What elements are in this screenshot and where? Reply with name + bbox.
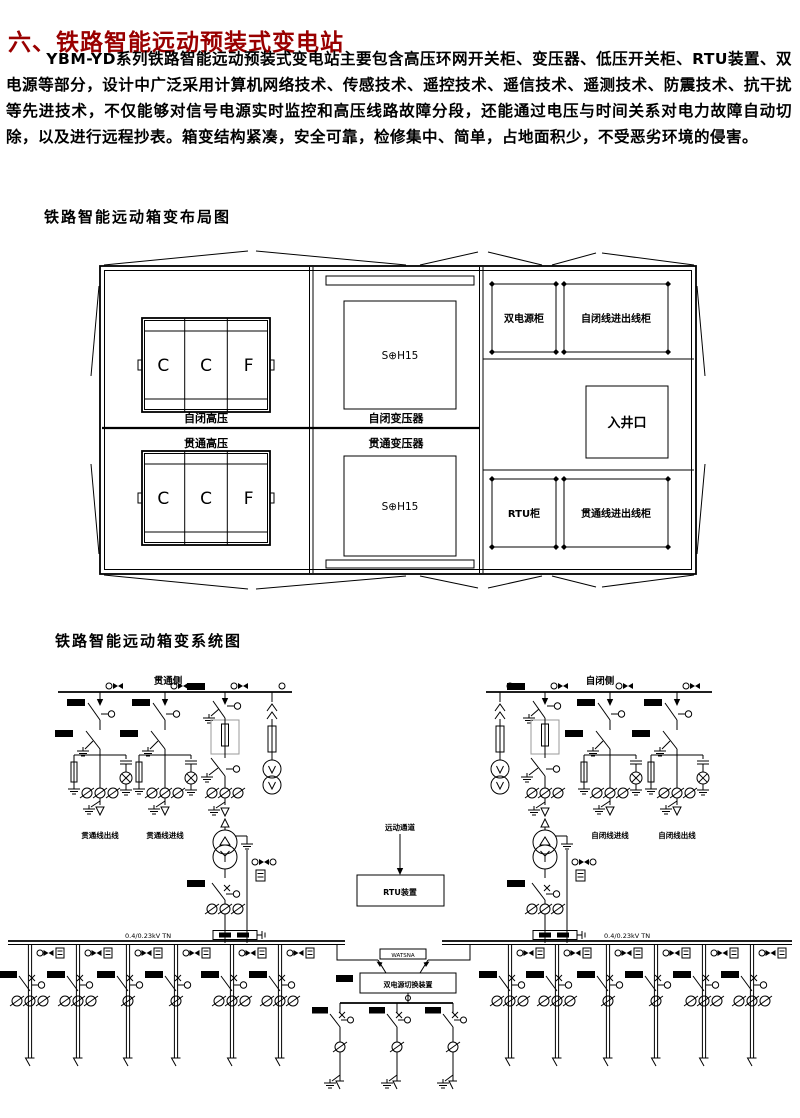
lv-feeder bbox=[201, 945, 266, 1066]
lv-feeder bbox=[625, 945, 690, 1066]
rtu-box-label: RTU装置 bbox=[383, 887, 417, 897]
lv-feeder bbox=[577, 945, 642, 1066]
room-label-zibi-hv: 自闭高压 bbox=[184, 411, 228, 425]
lv-feeder bbox=[249, 945, 314, 1066]
hv-room-top: C C F 自闭高压 bbox=[138, 318, 274, 425]
room-label-guantong-tx: 贯通变压器 bbox=[369, 436, 425, 450]
lv-bus-label: 0.4/0.23kV TN bbox=[125, 932, 171, 940]
feeder-label: 自闭线出线 bbox=[658, 830, 696, 840]
lv-bus-label: 0.4/0.23kV TN bbox=[604, 932, 650, 940]
manhole-label: 入井口 bbox=[607, 415, 646, 431]
system-diagram: 贯通侧 贯通线出线 贯通线进线 自闭侧 自闭线进线 自闭线出线 远动通道 RTU… bbox=[0, 658, 800, 1118]
pt-bay bbox=[263, 683, 285, 794]
dual-power-cabinet-label: 双电源柜 bbox=[504, 312, 544, 325]
pt-bay bbox=[491, 683, 513, 794]
rtu-cabinet-label: RTU柜 bbox=[508, 507, 540, 520]
ats-feeder bbox=[425, 1003, 467, 1089]
transformer-model: S⊕H15 bbox=[382, 350, 419, 362]
hv-room-bottom: 贯通高压 C C F bbox=[138, 436, 274, 545]
zibi-hv-section: 自闭侧 自闭线进线 自闭线出线 bbox=[486, 675, 712, 943]
lv-feeder bbox=[97, 945, 162, 1066]
transformer-model: S⊕H15 bbox=[382, 501, 419, 513]
room-label-zibi-tx: 自闭变压器 bbox=[369, 411, 425, 425]
lv-feeder bbox=[721, 945, 786, 1066]
zibi-io-cabinet-label: 自闭线进出线柜 bbox=[581, 312, 651, 325]
cabinet-letter: C bbox=[157, 489, 169, 509]
hv-bay bbox=[565, 683, 642, 815]
hv-bay bbox=[632, 683, 709, 815]
feeder-label: 自闭线进线 bbox=[591, 830, 629, 840]
lv-feeder bbox=[526, 945, 591, 1066]
transformer-bay bbox=[507, 683, 596, 943]
transformer-room-top: S⊕H15 自闭变压器 bbox=[326, 276, 474, 425]
guantong-hv-section: 贯通侧 贯通线出线 贯通线进线 bbox=[55, 675, 292, 943]
remote-channel-label: 远动通道 bbox=[385, 822, 415, 832]
lv-bus-right: 0.4/0.23kV TN bbox=[442, 932, 792, 1066]
feeder-label: 贯通线出线 bbox=[81, 830, 119, 840]
lv-feeder bbox=[0, 945, 64, 1066]
cabinet-letter: F bbox=[244, 356, 254, 376]
ats-box-label: 双电源切换装置 bbox=[384, 980, 433, 989]
hv-bay bbox=[55, 683, 132, 815]
right-room: 双电源柜 自闭线进出线柜 入井口 RTU柜 贯通线进出线柜 bbox=[489, 281, 671, 550]
zibi-bus-label: 自闭侧 bbox=[586, 675, 615, 687]
ats-assembly: WATSNA 双电源切换装置 bbox=[312, 945, 470, 1089]
guantong-bus-label: 贯通侧 bbox=[154, 675, 183, 687]
intro-paragraph: YBM-YD系列铁路智能远动预装式变电站主要包含高压环网开关柜、变压器、低压开关… bbox=[6, 46, 792, 150]
cabinet-letter: F bbox=[244, 489, 254, 509]
lv-feeder bbox=[673, 945, 738, 1066]
cabinet-letter: C bbox=[157, 356, 169, 376]
lv-feeder bbox=[47, 945, 112, 1066]
system-diagram-heading: 铁路智能远动箱变系统图 bbox=[55, 630, 242, 651]
cabinet-letter: C bbox=[200, 489, 212, 509]
ats-model-label: WATSNA bbox=[391, 953, 414, 959]
guantong-io-cabinet-label: 贯通线进出线柜 bbox=[581, 507, 651, 520]
transformer-bay bbox=[187, 683, 276, 943]
lv-feeder bbox=[479, 945, 544, 1066]
hv-bay bbox=[120, 683, 197, 815]
layout-diagram: C C F 自闭高压 贯通高压 C C F S⊕H15 自闭变压器 贯通变压器 … bbox=[90, 246, 710, 598]
rtu-assembly: 远动通道 RTU装置 bbox=[357, 822, 444, 906]
lv-bus-left: 0.4/0.23kV TN bbox=[0, 932, 345, 1066]
ats-feeder bbox=[369, 1003, 411, 1089]
layout-diagram-heading: 铁路智能远动箱变布局图 bbox=[44, 206, 231, 227]
cabinet-letter: C bbox=[200, 356, 212, 376]
ats-feeder bbox=[312, 1003, 354, 1089]
lv-feeder bbox=[145, 945, 210, 1066]
room-label-guantong-hv: 贯通高压 bbox=[184, 436, 228, 450]
catalog-page: 六、铁路智能远动预装式变电站 YBM-YD系列铁路智能远动预装式变电站主要包含高… bbox=[0, 0, 800, 1118]
transformer-room-bottom: 贯通变压器 S⊕H15 bbox=[326, 436, 474, 568]
feeder-label: 贯通线进线 bbox=[146, 830, 184, 840]
